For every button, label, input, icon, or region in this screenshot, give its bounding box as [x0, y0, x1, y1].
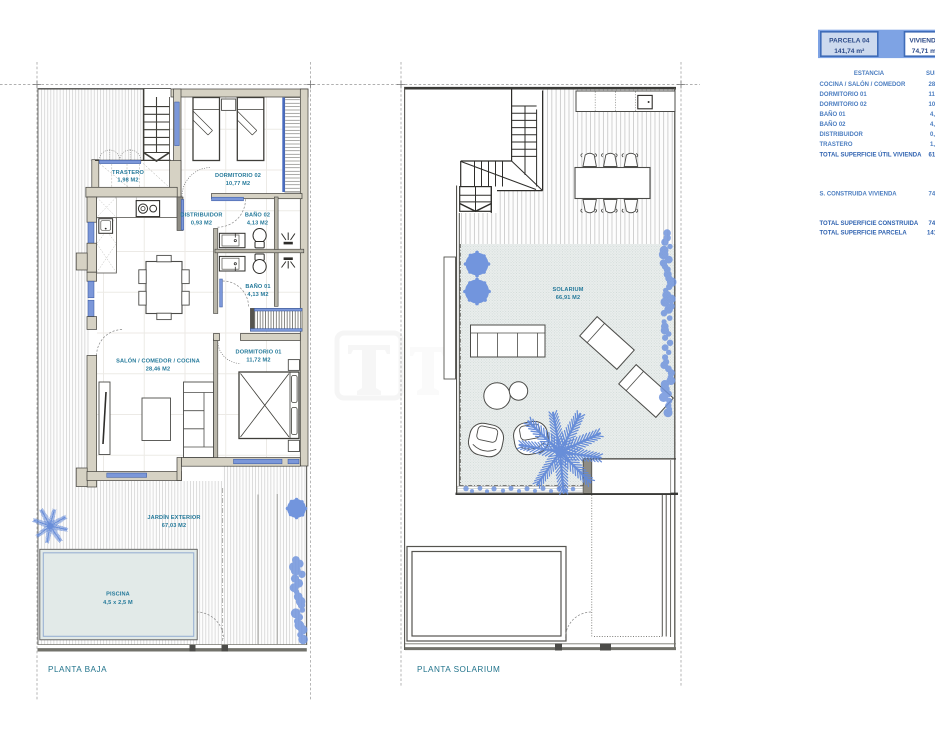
svg-text:10,77 M2: 10,77 M2 — [226, 181, 251, 187]
svg-text:TRASTERO: TRASTERO — [820, 142, 853, 148]
svg-text:4,13 M2: 4,13 M2 — [247, 221, 268, 227]
svg-text:BAÑO 01: BAÑO 01 — [820, 111, 847, 118]
svg-text:TRASTERO: TRASTERO — [112, 170, 144, 176]
svg-text:BAÑO 02: BAÑO 02 — [245, 212, 270, 219]
svg-text:SUPERFICIE: SUPERFICIE — [926, 71, 935, 77]
svg-text:S. CONSTRUIDA VIVIENDA: S. CONSTRUIDA VIVIENDA — [820, 192, 898, 198]
svg-text:74,71: 74,71 — [929, 192, 935, 198]
svg-text:TOTAL SUPERFICIE PARCELA: TOTAL SUPERFICIE PARCELA — [820, 231, 908, 237]
svg-text:4,5 x 2,5 M: 4,5 x 2,5 M — [103, 600, 133, 606]
svg-text:66,91 M2: 66,91 M2 — [556, 295, 581, 301]
svg-text:SALÓN / COMEDOR / COCINA: SALÓN / COMEDOR / COCINA — [116, 357, 200, 365]
svg-text:ESTANCIA: ESTANCIA — [854, 71, 885, 77]
svg-text:11,72: 11,72 — [929, 92, 935, 98]
svg-text:BAÑO 02: BAÑO 02 — [820, 121, 847, 128]
svg-text:67,03 M2: 67,03 M2 — [162, 523, 187, 529]
svg-text:TOTAL SUPERFICIE CONSTRUIDA: TOTAL SUPERFICIE CONSTRUIDA — [820, 221, 919, 227]
svg-text:0,93 M2: 0,93 M2 — [191, 221, 212, 227]
svg-text:61,23: 61,23 — [929, 153, 935, 159]
svg-text:SOLARIUM: SOLARIUM — [552, 287, 583, 293]
svg-text:JARDÍN EXTERIOR: JARDÍN EXTERIOR — [147, 513, 200, 521]
svg-text:DORMITORIO 01: DORMITORIO 01 — [236, 350, 282, 356]
svg-text:COCINA / SALÓN / COMEDOR: COCINA / SALÓN / COMEDOR — [820, 80, 906, 88]
svg-text:DORMITORIO 01: DORMITORIO 01 — [820, 92, 868, 98]
svg-text:DORMITORIO 02: DORMITORIO 02 — [820, 102, 868, 108]
svg-text:DISTRIBUIDOR: DISTRIBUIDOR — [820, 132, 864, 138]
svg-text:74,71: 74,71 — [929, 221, 935, 227]
svg-text:4,13: 4,13 — [930, 122, 935, 128]
svg-text:4,13 M2: 4,13 M2 — [247, 292, 268, 298]
svg-text:TOTAL SUPERFICIE ÚTIL VIVIENDA: TOTAL SUPERFICIE ÚTIL VIVIENDA — [820, 152, 923, 159]
svg-text:141,74 m²: 141,74 m² — [834, 48, 865, 55]
svg-text:BAÑO 01: BAÑO 01 — [245, 283, 270, 290]
svg-text:0,93: 0,93 — [930, 132, 935, 138]
svg-text:PLANTA BAJA: PLANTA BAJA — [48, 665, 107, 674]
svg-text:141,74: 141,74 — [927, 231, 935, 237]
svg-text:11,72 M2: 11,72 M2 — [246, 358, 270, 364]
svg-text:10,77: 10,77 — [929, 102, 935, 108]
svg-text:DORMITORIO 02: DORMITORIO 02 — [215, 173, 261, 179]
svg-text:VIVIENDA: VIVIENDA — [909, 38, 935, 45]
svg-text:74,71 m²: 74,71 m² — [912, 48, 935, 55]
svg-text:4,13: 4,13 — [930, 112, 935, 118]
svg-text:1,98: 1,98 — [930, 142, 935, 148]
svg-text:PISCINA: PISCINA — [106, 592, 130, 598]
svg-text:28,46: 28,46 — [929, 82, 935, 88]
svg-text:28,46 M2: 28,46 M2 — [146, 367, 171, 373]
svg-text:PARCELA 04: PARCELA 04 — [829, 38, 870, 45]
svg-text:DISTRIBUIDOR: DISTRIBUIDOR — [180, 213, 222, 219]
svg-text:PLANTA SOLARIUM: PLANTA SOLARIUM — [417, 665, 500, 674]
svg-text:1,98 M2: 1,98 M2 — [117, 178, 138, 184]
